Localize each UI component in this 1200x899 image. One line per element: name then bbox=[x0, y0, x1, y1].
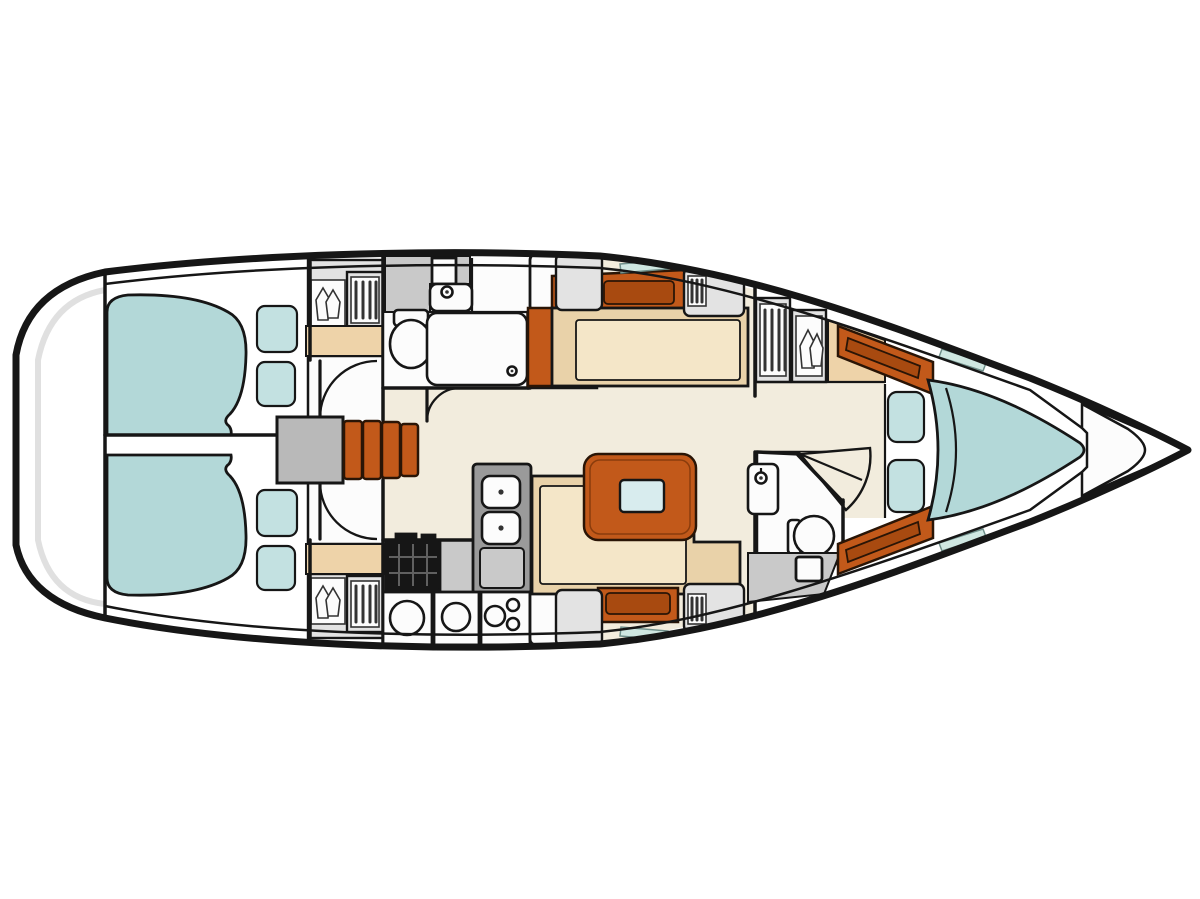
double-sink bbox=[473, 464, 531, 594]
yacht-floor-plan-svg: Sailboat interior layout plan (top-down … bbox=[0, 0, 1200, 899]
aft-berth-port bbox=[107, 295, 246, 435]
pillow bbox=[257, 306, 297, 352]
louver-vent-icon bbox=[347, 272, 383, 328]
cabin-shelf bbox=[306, 326, 384, 356]
wardrobe-icon bbox=[311, 578, 345, 624]
louver-vent-icon bbox=[756, 298, 790, 382]
companionway-steps bbox=[344, 421, 418, 479]
louver-vent-icon bbox=[347, 576, 383, 632]
hull-locker bbox=[556, 254, 602, 310]
wardrobe-icon bbox=[311, 280, 345, 326]
locker-box bbox=[796, 557, 822, 581]
sink-icon bbox=[748, 464, 778, 514]
fridge-lid bbox=[383, 592, 432, 645]
berth-cushion bbox=[888, 392, 924, 442]
hull-locker bbox=[556, 590, 602, 646]
settee-cushion-inner bbox=[576, 320, 740, 380]
aft-berth-starboard bbox=[107, 455, 246, 595]
shower-drain-icon bbox=[508, 367, 517, 376]
table-leaf-inset bbox=[620, 480, 664, 512]
pillow bbox=[257, 546, 295, 590]
companionway bbox=[277, 417, 418, 483]
berth-cushion bbox=[888, 460, 924, 512]
cabin-shelf bbox=[306, 544, 384, 574]
head-wall bbox=[757, 452, 800, 454]
sink-icon bbox=[430, 284, 472, 311]
locker-box bbox=[432, 258, 456, 284]
galley-counter bbox=[438, 540, 476, 594]
wardrobe-icon bbox=[792, 310, 826, 382]
galley-round-sink bbox=[481, 592, 530, 645]
toilet-icon bbox=[788, 516, 834, 556]
saloon-table bbox=[584, 454, 696, 540]
backrest-inset bbox=[604, 281, 674, 304]
sink-cabinet bbox=[480, 548, 524, 588]
floor-plan: Sailboat interior layout plan (top-down … bbox=[0, 0, 1200, 899]
engine-compartment bbox=[277, 417, 343, 483]
freezer-lid bbox=[434, 592, 479, 645]
pillow bbox=[257, 362, 295, 406]
pillow bbox=[257, 490, 297, 536]
stove-icon bbox=[386, 534, 440, 590]
backrest-inset bbox=[606, 593, 670, 614]
